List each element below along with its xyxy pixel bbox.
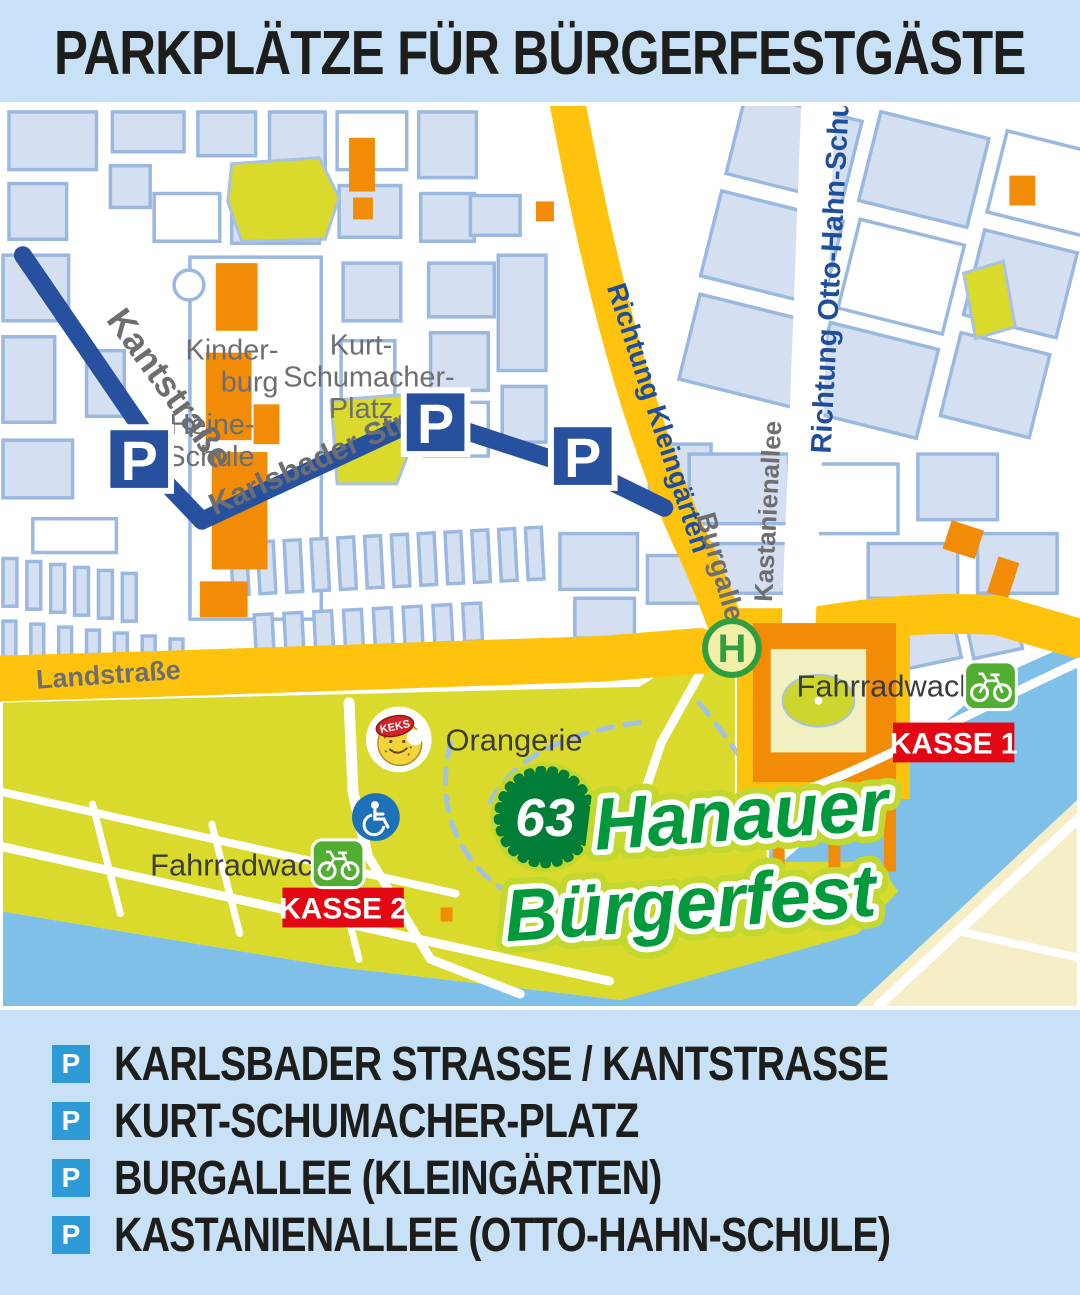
bus-stop-letter: H	[718, 627, 747, 671]
kasse1-label: KASSE 1	[890, 727, 1018, 760]
legend-item-burgallee: P BURGALLEE (KLEINGÄRTEN)	[52, 1158, 782, 1198]
legend-label: KASTANIENALLEE (OTTO-HAHN-SCHULE)	[114, 1208, 890, 1263]
city-map: P	[0, 106, 1080, 1006]
label-kurt-3: Platz	[329, 393, 393, 425]
legend-label: KURT-SCHUMACHER-PLATZ	[114, 1094, 638, 1149]
label-orangerie: Orangerie	[446, 722, 583, 757]
kasse2-badge: KASSE 2	[279, 888, 407, 928]
label-heine-2: Schule	[166, 441, 254, 473]
bus-stop-icon: H	[705, 621, 759, 675]
bike-guard-icon-2	[312, 840, 364, 888]
parking-marker-karlsbader-kantstrasse	[107, 427, 171, 492]
parking-icon: P	[52, 1216, 90, 1254]
kasse2-label: KASSE 2	[279, 892, 407, 925]
parking-icon: P	[52, 1045, 90, 1083]
label-kinderburg-2: burg	[221, 366, 279, 398]
festival-number: 63	[515, 788, 575, 848]
bike-guard-icon-1	[965, 662, 1017, 710]
roundabout	[174, 270, 204, 300]
label-kurt-1: Kurt-	[330, 330, 392, 362]
label-heine-1: Heine-	[170, 409, 255, 441]
legend-item-kurt-schumacher: P KURT-SCHUMACHER-PLATZ	[52, 1101, 753, 1141]
parking-marker-kurt-schumacher-platz	[404, 390, 468, 455]
poster-page: PARKPLÄTZE FÜR BÜRGERFESTGÄSTE P	[0, 0, 1080, 1295]
kasse1-badge: KASSE 1	[890, 723, 1018, 763]
legend-item-karlsbader: P KARLSBADER STRASSE / KANTSTRASSE	[52, 1044, 1058, 1084]
title-banner: PARKPLÄTZE FÜR BÜRGERFESTGÄSTE	[0, 0, 1080, 102]
keks-mascot-icon: KEKS	[366, 707, 432, 773]
legend-label: BURGALLEE (KLEINGÄRTEN)	[114, 1151, 661, 1206]
legend-item-kastanienallee: P KASTANIENALLEE (OTTO-HAHN-SCHULE)	[52, 1215, 1061, 1255]
parking-marker-burgallee	[551, 424, 615, 489]
page-title: PARKPLÄTZE FÜR BÜRGERFESTGÄSTE	[54, 18, 1026, 89]
parking-legend: P KARLSBADER STRASSE / KANTSTRASSE P KUR…	[0, 1010, 1080, 1295]
wheelchair-icon	[352, 793, 400, 841]
parking-icon: P	[52, 1159, 90, 1197]
label-kinderburg-1: Kinder-	[186, 335, 279, 367]
map-canvas: P	[0, 106, 1080, 1006]
legend-label: KARLSBADER STRASSE / KANTSTRASSE	[114, 1037, 888, 1092]
parking-icon: P	[52, 1102, 90, 1140]
